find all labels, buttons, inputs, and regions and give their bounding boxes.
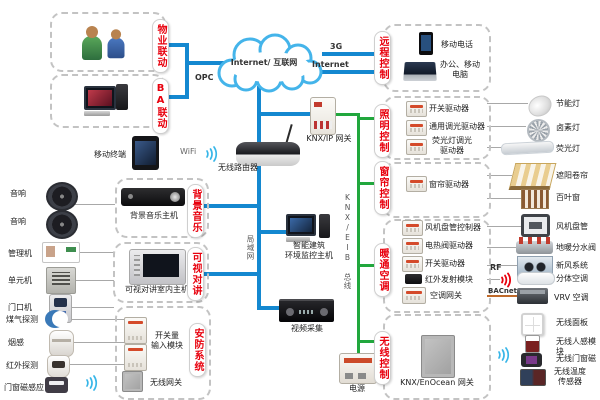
speaker-label: 音响 bbox=[10, 189, 26, 199]
tower-icon bbox=[319, 214, 330, 238]
vrv-ac-icon bbox=[517, 288, 548, 304]
property-linkage-tab: 物业联动 bbox=[152, 19, 169, 73]
infrared-detector-label: 红外探测 bbox=[6, 361, 38, 371]
security-tab: 安防系统 bbox=[189, 323, 206, 377]
label-lan: 局域网 bbox=[245, 235, 256, 261]
wireless-gateway-icon bbox=[122, 371, 143, 392]
fresh-air-label: 新风系统 bbox=[556, 261, 588, 271]
bgm-host-icon bbox=[121, 188, 185, 206]
link-bracket bbox=[185, 43, 189, 99]
vrv-ac-label: VRV 空调 bbox=[554, 293, 589, 303]
mobile-phone-label: 移动电话 bbox=[441, 40, 473, 50]
unit-machine-icon bbox=[46, 267, 76, 294]
laptop-icon bbox=[403, 62, 437, 81]
halogen-lamp-label: 卤素灯 bbox=[556, 123, 580, 133]
label-wifi: WiFi bbox=[180, 147, 196, 157]
switch-input-module-icon bbox=[124, 317, 147, 344]
unit-machine-label: 单元机 bbox=[8, 276, 32, 286]
intercom-tab: 可视对讲 bbox=[187, 247, 204, 301]
link-envhost bbox=[259, 230, 288, 234]
blinds-label: 百叶窗 bbox=[556, 193, 580, 203]
fan-coil-icon bbox=[521, 214, 550, 237]
bus-vertical bbox=[357, 113, 360, 354]
label-bacnet: BACnet bbox=[488, 287, 517, 296]
ac-gateway-icon bbox=[402, 287, 426, 304]
door-station-label: 门口机 bbox=[8, 303, 32, 313]
wifi-signal-icon bbox=[84, 373, 100, 393]
manifold-icon bbox=[516, 241, 553, 254]
switch-driver-icon bbox=[406, 101, 427, 117]
curtain-driver-icon bbox=[406, 176, 427, 192]
router-antenna-icon bbox=[285, 124, 292, 144]
infrared-detector-icon bbox=[47, 355, 70, 378]
fl-dimmer-driver-label: 荧光灯调光 驱动器 bbox=[427, 136, 477, 156]
knx-system-diagram: Internet/ 互联网 3G Internet OPC WiFi RF BA… bbox=[0, 0, 600, 400]
fcu-controller-label: 风机盘管控制器 bbox=[425, 223, 481, 233]
dimmer-driver-label: 通用调光驱动器 bbox=[429, 122, 485, 132]
switch-input-module-icon bbox=[124, 344, 147, 371]
link-ba-cloud bbox=[168, 95, 188, 99]
valve-driver-icon bbox=[402, 238, 423, 254]
link-intercom bbox=[201, 272, 258, 276]
switch-driver-label: 开关驱动器 bbox=[425, 259, 465, 269]
split-ac-icon bbox=[517, 272, 555, 285]
wireless-door-magnet-icon bbox=[521, 353, 542, 367]
link-lan bbox=[257, 166, 261, 310]
manager-unit-icon bbox=[42, 242, 80, 263]
curtain-control-tab: 窗帘控制 bbox=[374, 161, 391, 215]
wifi-signal-icon bbox=[496, 345, 512, 365]
mobile-phone-icon bbox=[419, 32, 433, 55]
ba-computer-icon bbox=[84, 84, 130, 118]
fl-dimmer-driver-icon bbox=[406, 139, 427, 155]
awning-icon bbox=[509, 163, 557, 190]
split-ac-label: 分体空调 bbox=[556, 274, 588, 284]
bgm-host-label: 背景音乐主机 bbox=[125, 211, 183, 221]
link-bgm bbox=[203, 204, 258, 208]
wifi-signal-icon bbox=[204, 144, 220, 164]
keyboard-icon bbox=[84, 111, 110, 116]
fan-coil-label: 风机盘管 bbox=[556, 222, 588, 232]
remote-control-box bbox=[383, 24, 491, 92]
wireless-door-magnet-label: 无线门窗磁 bbox=[556, 354, 596, 364]
label-3g: 3G bbox=[330, 42, 342, 52]
switch-driver-label: 开关驱动器 bbox=[429, 104, 469, 114]
curtain-control-box bbox=[383, 162, 491, 218]
wire-manager bbox=[78, 252, 114, 253]
wireless-temp-sensor-icon bbox=[520, 369, 546, 386]
mobile-terminal-label: 移动终端 bbox=[94, 150, 126, 160]
ba-linkage-tab: BA联动 bbox=[152, 78, 169, 134]
door-magnet-icon bbox=[45, 377, 68, 393]
wireless-panel-label: 无线面板 bbox=[556, 318, 588, 328]
env-host-label: 智能建筑 环境监控主机 bbox=[278, 241, 340, 261]
switch-driver-icon bbox=[402, 256, 423, 272]
hvac-control-tab: 暖通空调 bbox=[374, 243, 391, 297]
fluorescent-lamp-label: 荧光灯 bbox=[556, 144, 580, 154]
cloud-label: Internet/ 互联网 bbox=[226, 58, 302, 68]
lighting-control-tab: 照明控制 bbox=[374, 104, 391, 158]
wireless-gateway-label: 无线网关 bbox=[150, 378, 182, 388]
blinds-icon bbox=[521, 189, 549, 209]
monitor-icon bbox=[286, 214, 316, 236]
wire-door bbox=[70, 307, 114, 308]
tablet-icon bbox=[132, 136, 159, 170]
dimmer-driver-icon bbox=[406, 120, 427, 136]
label-knx-bus: KNX/EIB 总线 bbox=[342, 193, 353, 290]
fcu-controller-icon bbox=[402, 220, 423, 236]
speaker-icon bbox=[46, 210, 78, 239]
curtain-driver-label: 窗帘驱动器 bbox=[429, 180, 469, 190]
video-capture-label: 视频采集 bbox=[283, 324, 331, 334]
wireless-temp-sensor-label: 无线温度 传感器 bbox=[552, 367, 588, 387]
wireless-motion-icon bbox=[525, 335, 540, 353]
wire-halogen bbox=[487, 126, 526, 127]
wire-blinds bbox=[487, 198, 522, 199]
cfl-lamp-label: 节能灯 bbox=[556, 99, 580, 109]
bus-knxip bbox=[333, 113, 360, 116]
power-supply-label: 电源 bbox=[344, 384, 370, 394]
ac-gateway-label: 空调网关 bbox=[430, 291, 462, 301]
bgm-tab: 背景音乐 bbox=[187, 184, 204, 238]
remote-control-tab: 远程控制 bbox=[374, 31, 391, 85]
cfl-lamp-icon bbox=[525, 91, 556, 120]
people-icon bbox=[80, 20, 128, 60]
awning-label: 遮阳卷帘 bbox=[556, 171, 588, 181]
power-supply-icon bbox=[339, 353, 377, 384]
door-magnet-label: 门窗磁感应 bbox=[4, 383, 44, 393]
fluorescent-lamp-icon bbox=[501, 141, 555, 156]
knx-enocean-gateway-label: KNX/EnOcean 网关 bbox=[396, 378, 478, 388]
knx-ip-gateway-icon bbox=[310, 97, 336, 135]
speaker-icon bbox=[46, 182, 78, 211]
wireless-control-tab: 无线控制 bbox=[374, 331, 391, 385]
wire-unit bbox=[74, 280, 114, 281]
smoke-sensor-label: 烟感 bbox=[8, 338, 24, 348]
label-rf: RF bbox=[490, 263, 502, 273]
tower-icon bbox=[116, 84, 128, 110]
wire-fancoil bbox=[487, 226, 522, 227]
switch-input-label: 开关量 输入模块 bbox=[148, 331, 186, 351]
speaker-label: 音响 bbox=[10, 217, 26, 227]
wire-cfl bbox=[487, 103, 528, 104]
label-internet: Internet bbox=[312, 60, 349, 70]
gas-detector-icon bbox=[45, 310, 65, 328]
manifold-label: 地暖分水阀 bbox=[556, 243, 596, 253]
intercom-host-icon bbox=[129, 249, 186, 285]
smoke-sensor-icon bbox=[49, 330, 74, 357]
knx-ip-gateway-label: KNX/IP 网关 bbox=[296, 134, 362, 144]
wireless-router-label: 无线路由器 bbox=[218, 163, 258, 173]
intercom-host-label: 可视对讲室内主机 bbox=[122, 285, 192, 295]
wireless-panel-icon bbox=[521, 313, 544, 336]
person-icon bbox=[82, 36, 102, 60]
office-pc-label: 办公、移动 电脑 bbox=[436, 60, 484, 80]
manager-unit-label: 管理机 bbox=[8, 249, 32, 259]
valve-driver-label: 电热阀驱动器 bbox=[425, 241, 473, 251]
link-knxip bbox=[257, 112, 311, 116]
wire-manifold bbox=[487, 247, 517, 248]
knx-enocean-gateway-icon bbox=[421, 335, 455, 378]
label-opc: OPC bbox=[195, 73, 214, 83]
ir-emitter-icon bbox=[405, 274, 422, 284]
person-icon bbox=[108, 38, 125, 58]
env-host-icon bbox=[286, 214, 334, 244]
gas-detector-label: 煤气探测 bbox=[6, 315, 38, 325]
ir-emitter-label: 红外发射模块 bbox=[425, 275, 473, 285]
halogen-lamp-icon bbox=[527, 119, 550, 142]
monitor-icon bbox=[84, 86, 116, 110]
video-capture-icon bbox=[279, 299, 334, 322]
